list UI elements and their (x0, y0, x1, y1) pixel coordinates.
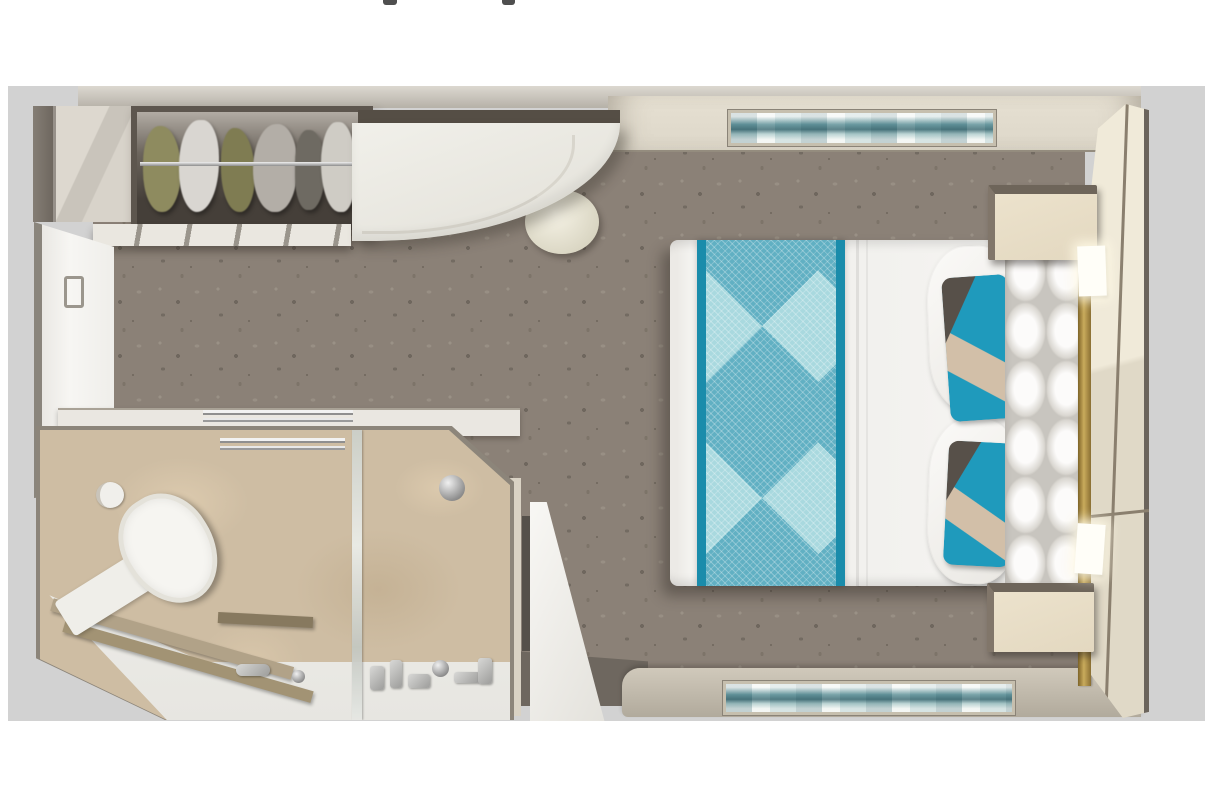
page (0, 0, 1215, 810)
nightstand-lower (987, 583, 1094, 652)
shower-ledge (218, 612, 313, 628)
shower-fitting (478, 658, 492, 684)
wardrobe-end-panel (33, 106, 53, 222)
drain (292, 670, 305, 683)
garment (179, 120, 219, 212)
tufted-headboard (1005, 244, 1087, 592)
sink-faucet (236, 664, 270, 676)
desk-trim (358, 110, 620, 123)
garment (221, 128, 255, 212)
toilet-paper-roll (96, 482, 124, 508)
artwork-top-wall (728, 110, 996, 146)
sheet-fold (866, 240, 868, 586)
shower-fitting (390, 660, 402, 688)
door-handle (64, 276, 84, 308)
shower-fitting (454, 672, 480, 683)
shower-fitting (408, 674, 430, 688)
sheet-fold (856, 240, 859, 586)
garment (143, 126, 181, 212)
bathroom (40, 430, 510, 720)
towel-bar (203, 410, 353, 422)
garment (253, 124, 297, 212)
panel-seam (1104, 104, 1128, 718)
floorplan (8, 86, 1205, 721)
headboard-wall-panels (1091, 104, 1149, 718)
artwork-bottom-wall (723, 681, 1015, 715)
panel-seam (1091, 509, 1149, 518)
cropped-text-fragment (502, 0, 515, 5)
garment (321, 122, 355, 212)
wall-sconce-lower (1074, 523, 1105, 575)
bed-runner (697, 240, 845, 586)
shower-glass-panel (352, 430, 362, 720)
wardrobe-drawer-fronts (93, 224, 351, 246)
shower-fitting (370, 666, 384, 690)
wardrobe-side-cabinet (53, 106, 134, 222)
shower-head (439, 475, 465, 501)
shower-knob (432, 660, 449, 677)
wall-sconce-upper (1077, 246, 1107, 297)
wardrobe (131, 106, 373, 236)
cropped-text-fragment (383, 0, 397, 5)
closet-rail (140, 162, 364, 166)
towel-bar-inner (220, 438, 345, 450)
